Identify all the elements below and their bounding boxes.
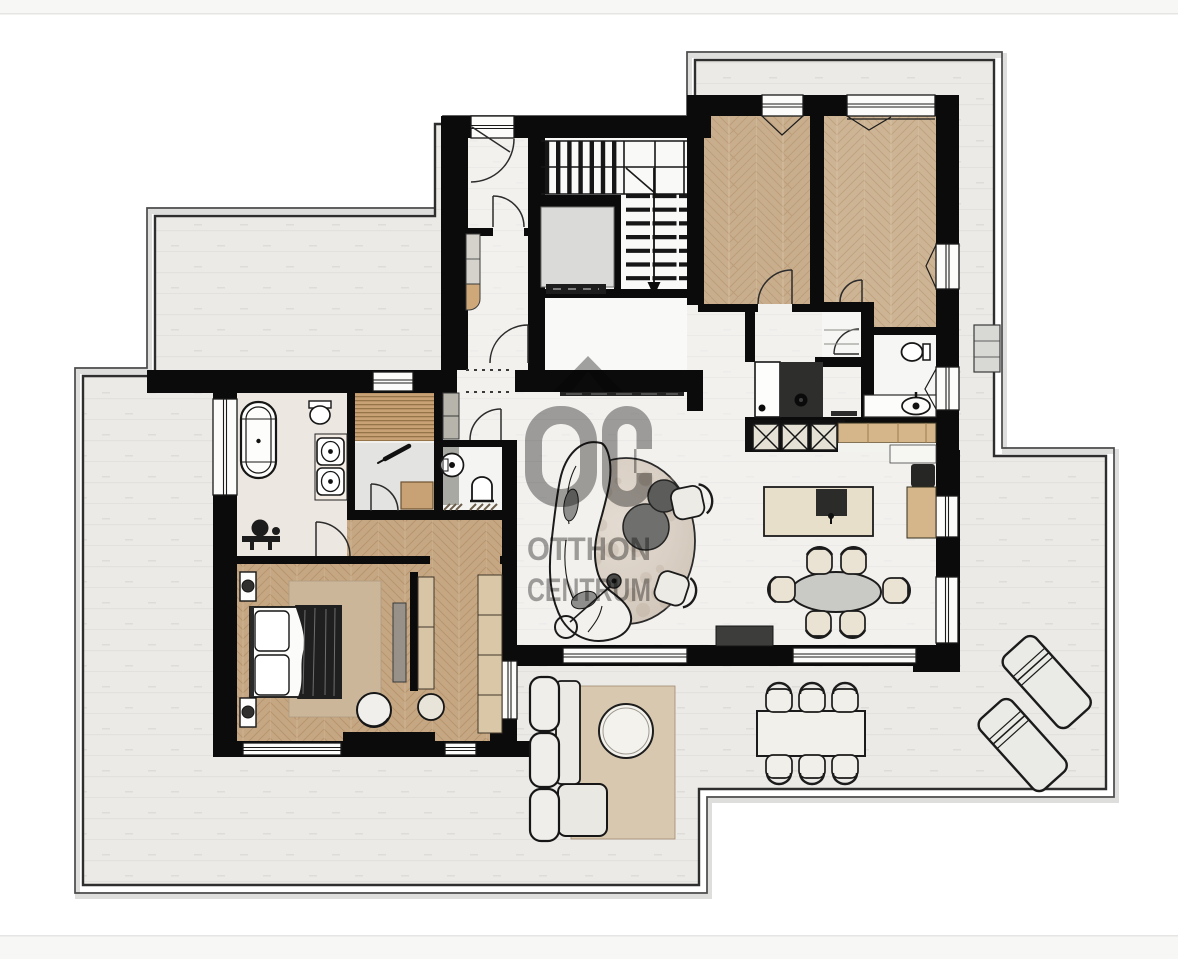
svg-text:CENTRUM: CENTRUM bbox=[527, 572, 651, 608]
svg-text:OTTHON: OTTHON bbox=[527, 531, 651, 567]
